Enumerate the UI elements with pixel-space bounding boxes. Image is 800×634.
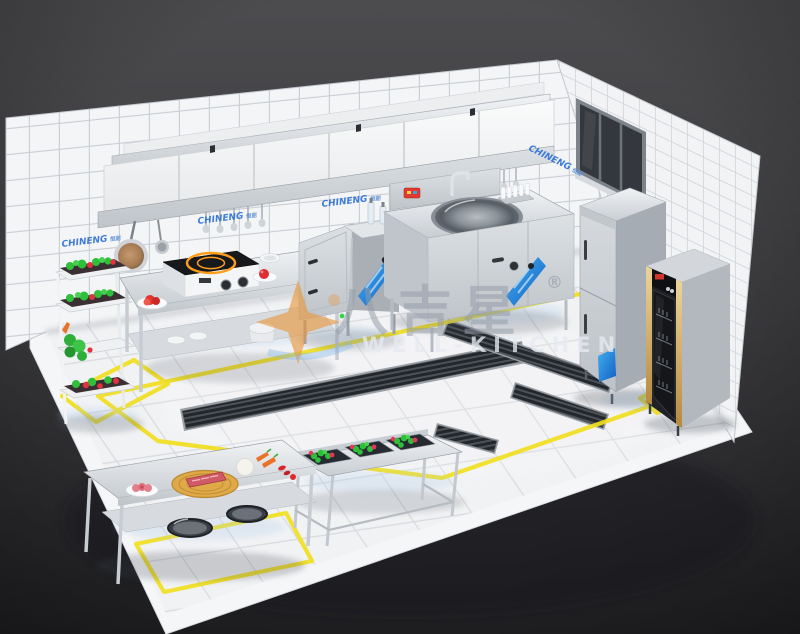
sterilizer-gold-right — [676, 279, 682, 428]
cooker-knob-1 — [221, 280, 231, 290]
wok-control-label — [404, 188, 420, 198]
cooker-display — [199, 278, 211, 283]
sterilizer-gold-left — [646, 266, 652, 405]
sterilizer-red-label — [655, 274, 664, 280]
kitchen-3d-svg: CHINENG恒能 CHINENG恒能 CHINENG恒能 CHINENG恒能 … — [0, 0, 800, 634]
commercial-kitchen-3d-render: CHINENG恒能 CHINENG恒能 CHINENG恒能 CHINENG恒能 … — [0, 0, 800, 634]
cooker-knob-2 — [238, 277, 248, 287]
wok-knob — [510, 262, 519, 271]
fridge-handle-upper — [584, 240, 587, 260]
fridge-handle-lower — [584, 314, 587, 334]
meat-plate — [126, 483, 158, 497]
dough-ball — [237, 459, 254, 476]
cutting-board — [172, 471, 238, 498]
steamer-indicator — [340, 314, 345, 319]
seasoning-bottle-1 — [368, 202, 374, 224]
